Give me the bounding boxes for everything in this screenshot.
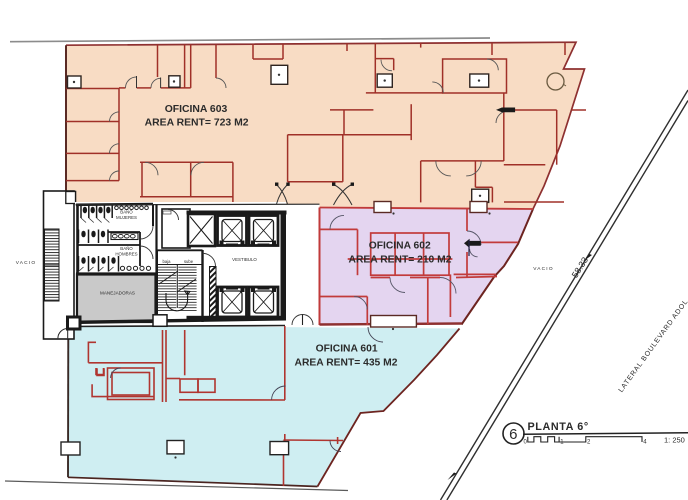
- svg-text:OFICINA 601: OFICINA 601: [316, 343, 378, 354]
- svg-text:4: 4: [643, 440, 647, 446]
- svg-text:BAÑO: BAÑO: [120, 210, 133, 215]
- svg-text:AREA RENT= 723 M2: AREA RENT= 723 M2: [145, 118, 249, 129]
- svg-text:VACIO: VACIO: [533, 266, 554, 272]
- svg-text:baja: baja: [163, 259, 172, 264]
- svg-text:MUJERES: MUJERES: [116, 215, 137, 220]
- svg-text:VACIO: VACIO: [16, 260, 37, 266]
- svg-text:sube: sube: [184, 259, 194, 264]
- svg-text:BAÑO: BAÑO: [120, 246, 133, 251]
- svg-text:MANEJADORAS: MANEJADORAS: [100, 291, 135, 296]
- svg-text:PLANTA 6°: PLANTA 6°: [528, 421, 589, 433]
- svg-text:AREA RENT= 210 M2: AREA RENT= 210 M2: [349, 255, 452, 266]
- svg-text:2: 2: [587, 440, 591, 446]
- svg-text:1: 250: 1: 250: [664, 436, 685, 445]
- svg-text:0: 0: [524, 440, 528, 446]
- svg-text:VESTIBULO: VESTIBULO: [232, 257, 257, 262]
- svg-text:OFICINA 603: OFICINA 603: [165, 104, 228, 115]
- svg-text:AREA RENT= 435 M2: AREA RENT= 435 M2: [295, 357, 398, 368]
- svg-text:6: 6: [509, 426, 517, 443]
- svg-text:LATERAL BOULEVARD ADOL: LATERAL BOULEVARD ADOL: [618, 298, 688, 394]
- svg-text:OFICINA 602: OFICINA 602: [369, 240, 431, 251]
- svg-text:HOMBRES: HOMBRES: [115, 252, 137, 257]
